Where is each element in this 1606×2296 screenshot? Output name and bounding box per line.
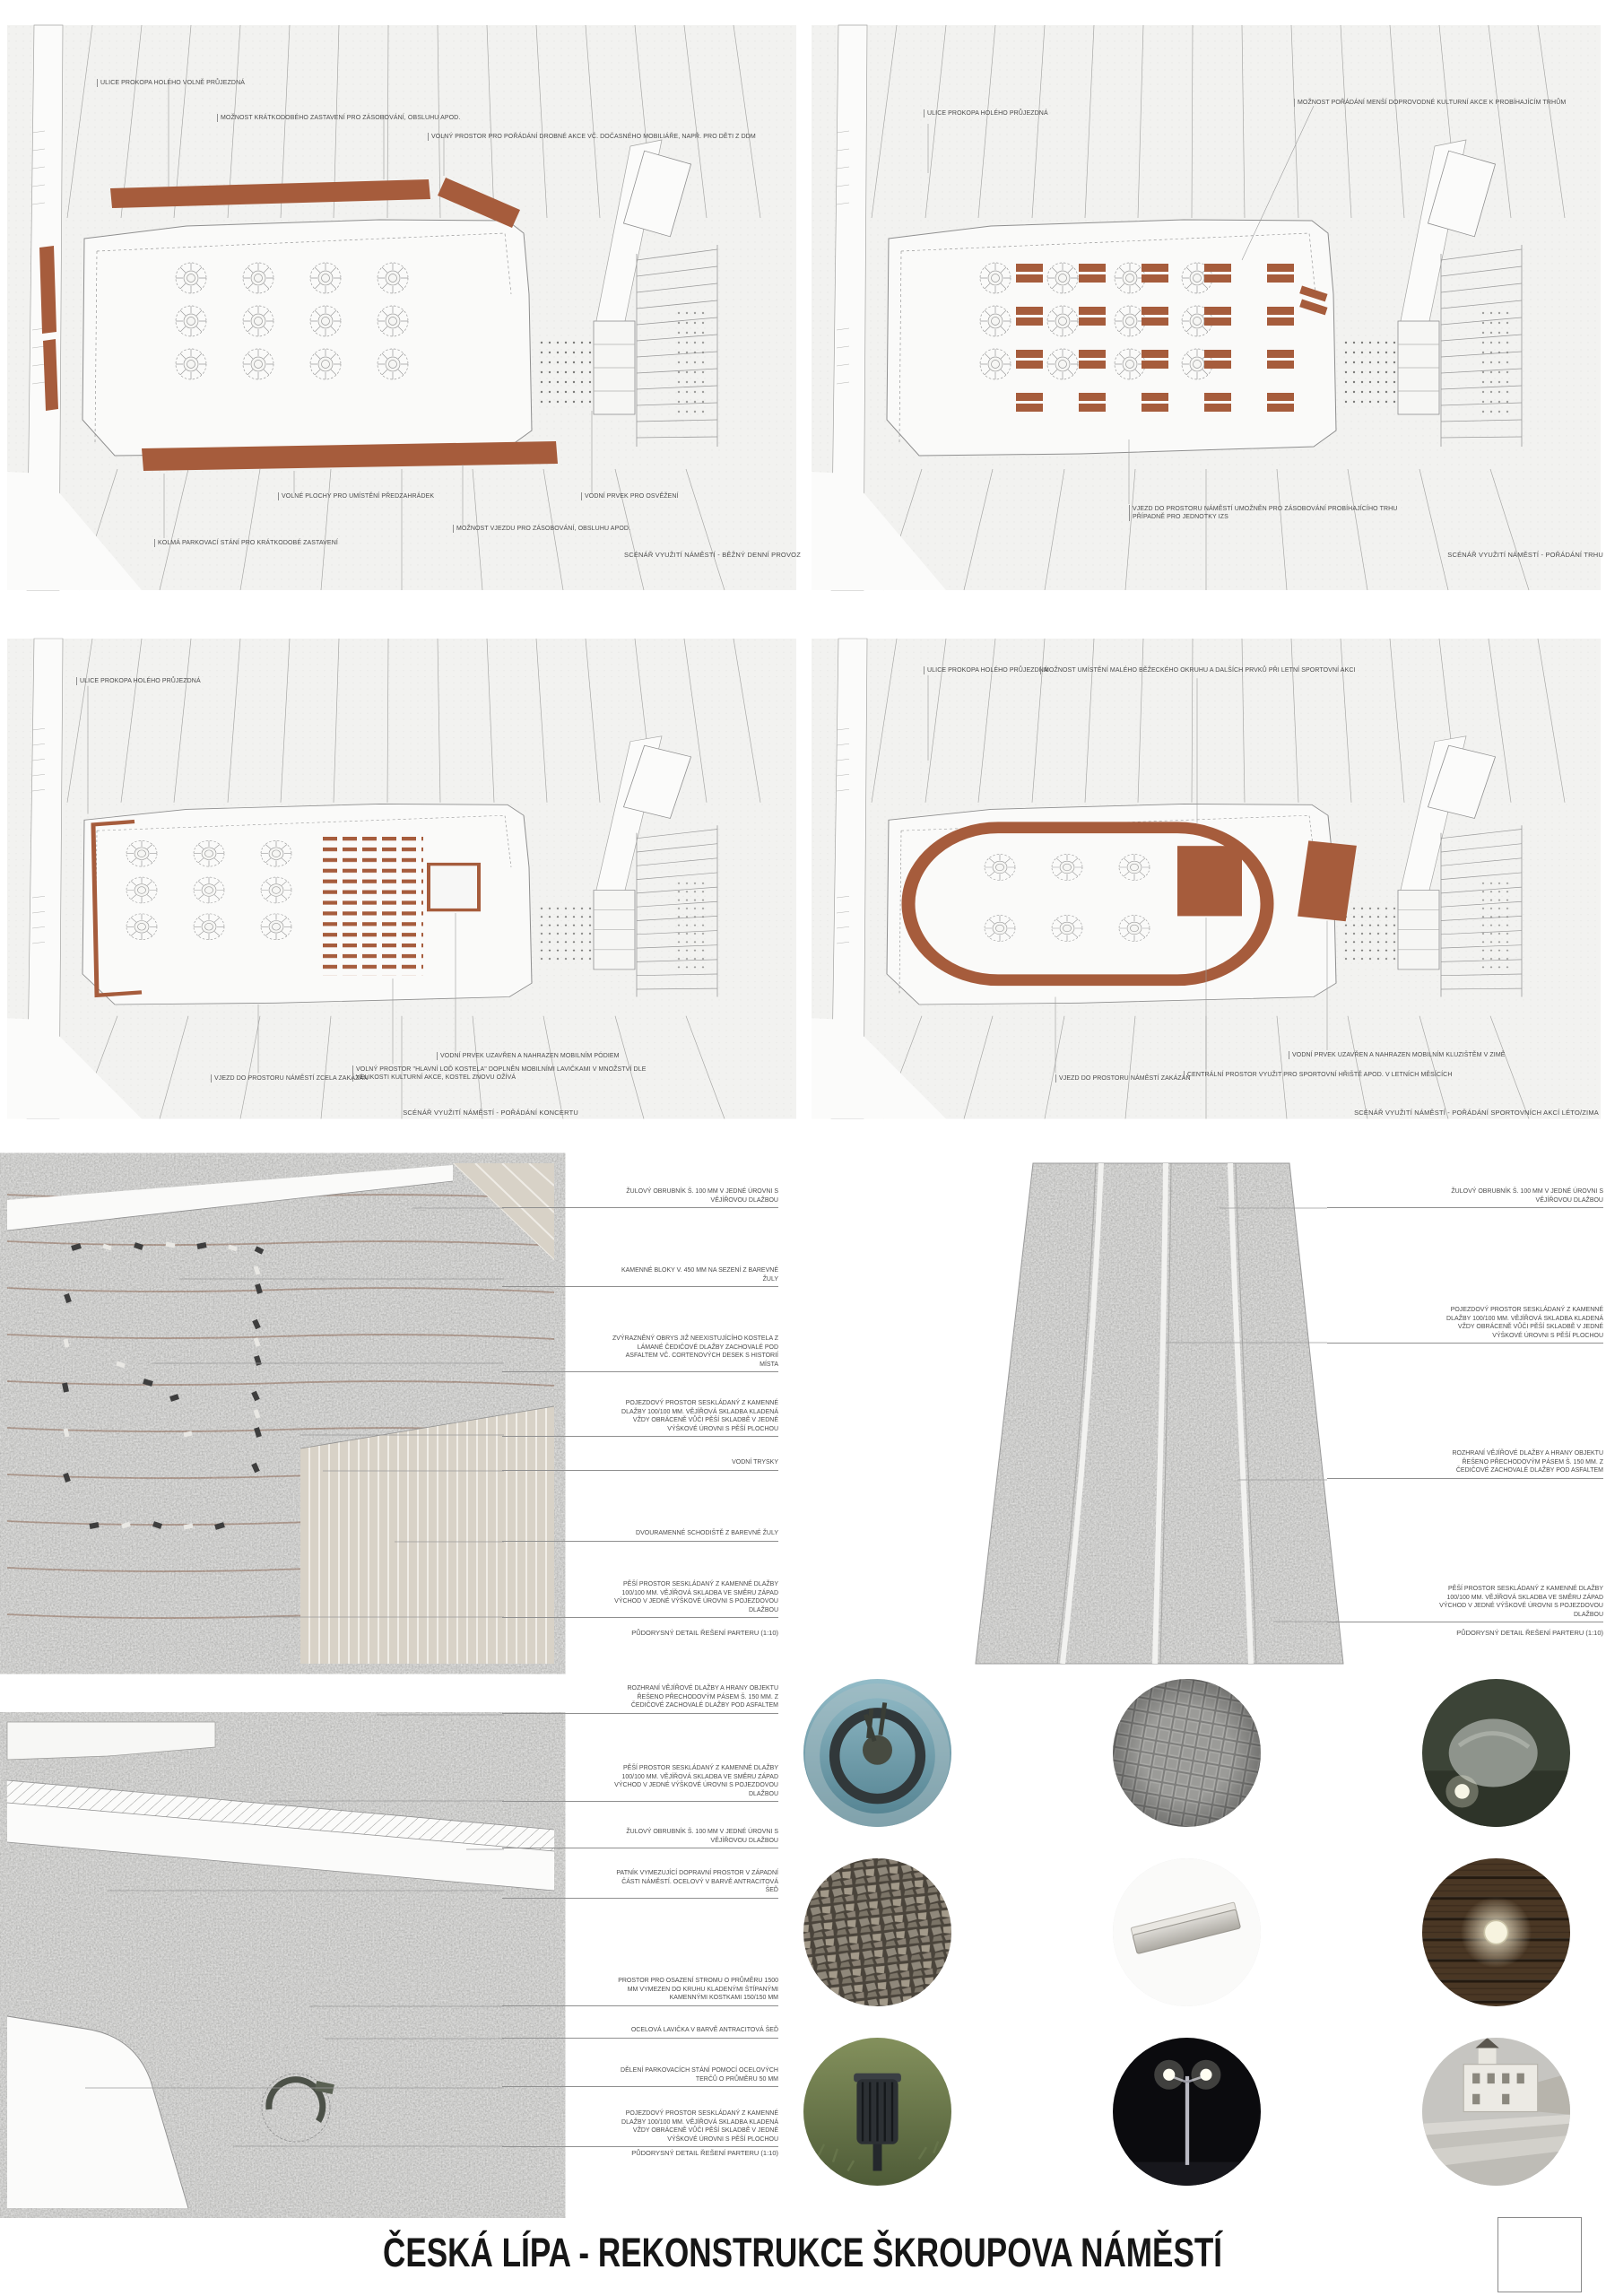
photo-town-square-stairs — [1422, 2038, 1570, 2186]
plan-annotation: VJEZD DO PROSTORU NÁMĚSTÍ UMOŽNĚN PRO ZÁ… — [1129, 505, 1428, 521]
photo-deck-recessed-light — [1422, 1858, 1570, 2006]
scenario-plan-daily — [7, 25, 796, 590]
detail-caption: PŮDORYSNÝ DETAIL ŘEŠENÍ PARTERU (1:10) — [502, 1629, 778, 1637]
detail-annotation: PROSTOR PRO OSAZENÍ STROMU O PRŮMĚRU 150… — [502, 1977, 778, 2006]
plan-annotation: ULICE PROKOPA HOLÉHO PRŮJEZDNÁ — [924, 109, 1107, 117]
plan-annotation: KOLMÁ PARKOVACÍ STÁNÍ PRO KRÁTKODOBÉ ZAS… — [154, 539, 400, 547]
detail-annotation: PĚŠÍ PROSTOR SESKLÁDANÝ Z KAMENNÉ DLAŽBY… — [502, 1764, 778, 1802]
detail-annotation: ŽULOVÝ OBRUBNÍK Š. 100 MM V JEDNÉ ÚROVNI… — [502, 1828, 778, 1848]
plan-annotation: MOŽNOST POŘÁDÁNÍ MENŠÍ DOPROVODNÉ KULTUR… — [1294, 99, 1593, 107]
detail-annotation: OCELOVÁ LAVIČKA V BARVĚ ANTRACITOVÁ ŠEĎ — [502, 2026, 778, 2039]
detail-annotation: ZVÝRAZNĚNÝ OBRYS JIŽ NEEXISTUJÍCÍHO KOST… — [502, 1335, 778, 1372]
detail-plan-band — [968, 1157, 1354, 1668]
plan-annotation: ULICE PROKOPA HOLÉHO PRŮJEZDNÁ — [76, 677, 259, 685]
photo-split-stone-paving — [803, 1858, 951, 2006]
board-title: ČESKÁ LÍPA - REKONSTRUKCE ŠKROUPOVA NÁMĚ… — [0, 2230, 1606, 2276]
plan-annotation: VOLNÝ PROSTOR PRO POŘÁDÁNÍ DROBNÉ AKCE V… — [428, 133, 763, 141]
plan-annotation: CENTRÁLNÍ PROSTOR VYUŽIT PRO SPORTOVNÍ H… — [1184, 1071, 1546, 1079]
photo-stone-with-ground-light — [1422, 1679, 1570, 1827]
scenario-plan-concert — [7, 639, 796, 1119]
board-title-text: ČESKÁ LÍPA - REKONSTRUKCE ŠKROUPOVA NÁMĚ… — [383, 2230, 1222, 2276]
detail-annotation: PĚŠÍ PROSTOR SESKLÁDANÝ Z KAMENNÉ DLAŽBY… — [502, 1580, 778, 1618]
photo-tree-with-circular-bench — [803, 1679, 951, 1827]
detail-annotation: VODNÍ TRYSKY — [502, 1458, 778, 1471]
plan-caption: SCÉNÁŘ VYUŽITÍ NÁMĚSTÍ - POŘÁDÁNÍ KONCER… — [273, 1109, 578, 1117]
detail-caption: PŮDORYSNÝ DETAIL ŘEŠENÍ PARTERU (1:10) — [1327, 1629, 1603, 1637]
detail-annotation: ŽULOVÝ OBRUBNÍK Š. 100 MM V JEDNÉ ÚROVNI… — [1327, 1187, 1603, 1208]
detail-annotation: PATNÍK VYMEZUJÍCÍ DOPRAVNÍ PROSTOR V ZÁP… — [502, 1869, 778, 1899]
detail-annotation: ROZHRANÍ VĚJÍŘOVÉ DLAŽBY A HRANY OBJEKTU… — [502, 1684, 778, 1714]
board-artwork — [0, 0, 1606, 2296]
detail-annotation: POJEZDOVÝ PROSTOR SESKLÁDANÝ Z KAMENNÉ D… — [1327, 1306, 1603, 1344]
detail-annotation: POJEZDOVÝ PROSTOR SESKLÁDANÝ Z KAMENNÉ D… — [502, 2109, 778, 2147]
stamp-box — [1497, 2217, 1582, 2292]
detail-caption: PŮDORYSNÝ DETAIL ŘEŠENÍ PARTERU (1:10) — [502, 2149, 778, 2157]
plan-annotation: VODNÍ PRVEK PRO OSVĚŽENÍ — [581, 492, 710, 500]
detail-annotation: DĚLENÍ PARKOVACÍCH STÁNÍ POMOCÍ OCELOVÝC… — [502, 2066, 778, 2087]
detail-annotation: POJEZDOVÝ PROSTOR SESKLÁDANÝ Z KAMENNÉ D… — [502, 1399, 778, 1437]
plan-annotation: ULICE PROKOPA HOLÉHO VOLNĚ PRŮJEZDNÁ — [97, 79, 280, 87]
detail-annotation: DVOURAMENNÉ SCHODIŠTĚ Z BAREVNÉ ŽULY — [502, 1529, 778, 1542]
photo-cobblestone-paving — [1113, 1679, 1261, 1827]
photo-street-lighting-night — [1113, 2038, 1261, 2186]
plan-annotation: VODNÍ PRVEK UZAVŘEN A NAHRAZEN MOBILNÍM … — [437, 1052, 709, 1060]
plan-annotation: MOŽNOST UMÍSTĚNÍ MALÉHO BĚŽECKÉHO OKRUHU… — [1040, 666, 1420, 674]
plan-annotation: MOŽNOST KRÁTKODOBÉHO ZASTAVENÍ PRO ZÁSOB… — [217, 114, 490, 122]
plan-annotation: VODNÍ PRVEK UZAVŘEN A NAHRAZEN MOBILNÍM … — [1289, 1051, 1588, 1059]
presentation-board: ULICE PROKOPA HOLÉHO VOLNĚ PRŮJEZDNÁ MOŽ… — [0, 0, 1606, 2296]
detail-annotation: ŽULOVÝ OBRUBNÍK Š. 100 MM V JEDNÉ ÚROVNI… — [502, 1187, 778, 1208]
detail-annotation: KAMENNÉ BLOKY V. 450 MM NA SEZENÍ Z BARE… — [502, 1266, 778, 1287]
plan-caption: SCÉNÁŘ VYUŽITÍ NÁMĚSTÍ - POŘÁDÁNÍ SPORTO… — [1294, 1109, 1599, 1117]
scenario-plan-sport — [812, 639, 1601, 1119]
detail-annotation: ROZHRANÍ VĚJÍŘOVÉ DLAŽBY A HRANY OBJEKTU… — [1327, 1449, 1603, 1479]
detail-plan-parking — [7, 1715, 554, 2208]
plan-annotation: MOŽNOST VJEZDU PRO ZÁSOBOVÁNÍ, OBSLUHU A… — [453, 525, 681, 533]
photo-granite-curb-element — [1113, 1858, 1261, 2006]
plan-annotation: VOLNÉ PLOCHY PRO UMÍSTĚNÍ PŘEDZAHRÁDEK — [278, 492, 479, 500]
photo-steel-litter-bin — [803, 2038, 951, 2186]
plan-caption: SCÉNÁŘ VYUŽITÍ NÁMĚSTÍ - BĚŽNÝ DENNÍ PRO… — [496, 551, 801, 559]
detail-annotation: PĚŠÍ PROSTOR SESKLÁDANÝ Z KAMENNÉ DLAŽBY… — [1327, 1585, 1603, 1622]
plan-caption: SCÉNÁŘ VYUŽITÍ NÁMĚSTÍ - POŘÁDÁNÍ TRHU — [1298, 551, 1603, 559]
plan-annotation: VOLNÝ PROSTOR "HLAVNÍ LOĎ KOSTELA" DOPLN… — [352, 1065, 661, 1082]
detail-plan-west — [7, 1163, 554, 1664]
